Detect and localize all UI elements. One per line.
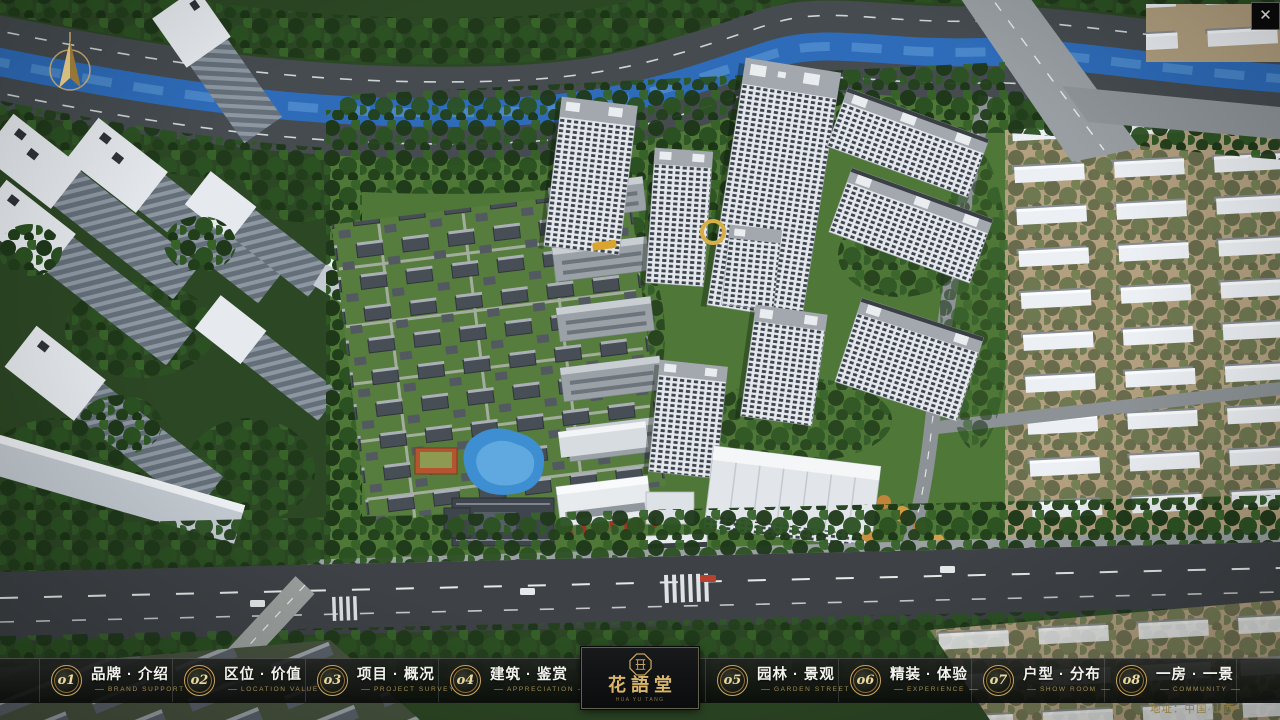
- nav-item-subtitle: COMMUNITY: [1156, 686, 1244, 693]
- nav-number-badge: o8: [1116, 665, 1147, 696]
- nav-item-room-view[interactable]: o8 一房 · 一景COMMUNITY: [1104, 659, 1237, 702]
- nav-number-badge: o2: [184, 665, 215, 696]
- nav-item-label: 一房 · 一景: [1156, 668, 1244, 683]
- nav-number-badge: o6: [850, 665, 881, 696]
- masterplan-3d-view[interactable]: [0, 0, 1280, 720]
- nav-number-badge: o7: [983, 665, 1014, 696]
- nav-item-project-survey[interactable]: o3 项目 · 概况PROJECT SURVEY: [305, 659, 438, 702]
- logo-name: 花語堂: [603, 677, 677, 695]
- compass-icon: [38, 28, 102, 104]
- project-logo[interactable]: 花語堂 HUA YU TANG: [581, 647, 699, 709]
- nav-number-badge: o4: [450, 665, 481, 696]
- nav-item-subtitle: SHOW ROOM: [1023, 686, 1114, 693]
- close-button[interactable]: ✕: [1251, 2, 1280, 30]
- nav-item-garden-landscape[interactable]: o5 园林 · 景观GARDEN STREET: [705, 659, 838, 702]
- nav-item-architecture[interactable]: o4 建筑 · 鉴赏APPRECIATION: [438, 659, 571, 702]
- logo-subtitle: HUA YU TANG: [616, 697, 665, 703]
- nav-item-label: 建筑 · 鉴赏: [490, 668, 591, 683]
- app-window: ✕ o1 品牌 · 介绍BRAND SUPPORT o2 区位 · 价值LOCA…: [0, 0, 1280, 720]
- nav-number-badge: o5: [717, 665, 748, 696]
- bottom-nav-bar: o1 品牌 · 介绍BRAND SUPPORT o2 区位 · 价值LOCATI…: [0, 658, 1280, 703]
- nav-item-floorplan-distribution[interactable]: o7 户型 · 分布SHOW ROOM: [971, 659, 1104, 702]
- nav-item-label: 精装 · 体验: [890, 668, 982, 683]
- nav-item-subtitle: EXPERIENCE: [890, 686, 982, 693]
- nav-item-location-value[interactable]: o2 区位 · 价值LOCATION VALUE: [172, 659, 305, 702]
- nav-item-label: 户型 · 分布: [1023, 668, 1114, 683]
- seal-icon: [629, 653, 652, 676]
- address-label: 地址：中国·山西: [1150, 701, 1235, 716]
- nav-item-interior-experience[interactable]: o6 精装 · 体验EXPERIENCE: [838, 659, 971, 702]
- nav-item-brand-intro[interactable]: o1 品牌 · 介绍BRAND SUPPORT: [39, 659, 172, 702]
- nav-number-badge: o3: [317, 665, 348, 696]
- nav-number-badge: o1: [51, 665, 82, 696]
- nav-item-subtitle: APPRECIATION: [490, 686, 591, 693]
